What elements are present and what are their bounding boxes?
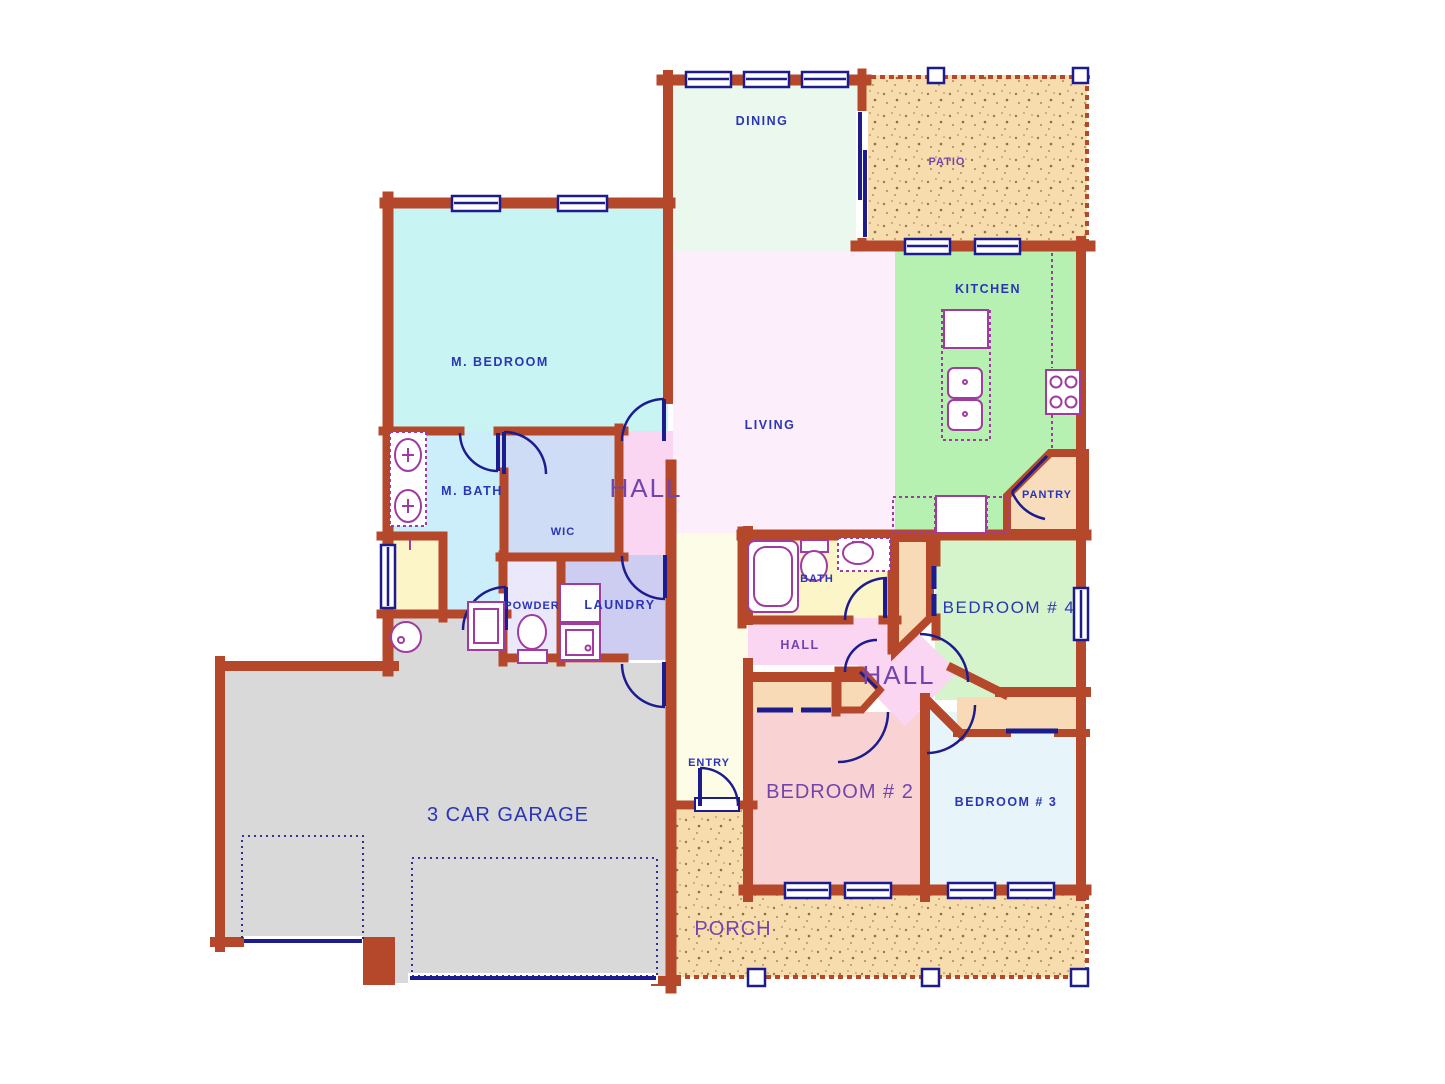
burner [1066,397,1077,408]
window [802,72,848,87]
drain [963,380,967,384]
utility-sink-basin [474,609,498,643]
window [905,239,950,254]
toilet [518,615,546,649]
cooktop [1046,370,1080,414]
window [744,72,789,87]
label-powder: POWDER [504,600,560,612]
water-heater [391,622,421,652]
window [558,196,607,211]
label-patio: PATIO [929,156,966,168]
sink [843,542,873,564]
label-garage: 3 CAR GARAGE [427,804,589,826]
floor-plan-page: DINING KITCHEN LIVING M. BEDROOM M. BATH… [0,0,1445,1084]
water-heater-valve [398,637,404,643]
label-laundry: LAUNDRY [584,598,655,612]
label-kitchen: KITCHEN [955,282,1021,296]
kitchen-cabinet [944,310,988,348]
wall [363,937,395,985]
label-living: LIVING [745,418,796,432]
drain [963,412,967,416]
room-garage [225,618,668,983]
range [936,496,986,533]
label-entry: ENTRY [688,757,730,769]
bedroom3-closet [957,697,1085,733]
patio-post [1073,68,1088,83]
room-living [673,252,895,535]
label-wic: WIC [551,526,575,538]
window [686,72,731,87]
window [948,883,995,898]
label-hall-mid: HALL [780,638,819,652]
burner [1051,397,1062,408]
porch-post [748,969,765,986]
room-m-bedroom [385,198,668,431]
window [1008,883,1054,898]
bathtub-inner [754,547,792,606]
sliding-door [856,111,868,238]
window [452,196,500,211]
toilet-base [518,650,547,663]
room-dining [668,75,862,252]
garage-door-opening [244,936,363,947]
window [845,883,891,898]
label-pantry: PANTRY [1022,489,1072,501]
porch-post [922,969,939,986]
window [975,239,1020,254]
garage-door-opening [408,973,658,984]
patio-post [928,68,944,83]
label-porch: PORCH [694,918,771,940]
label-bedroom2: BEDROOM # 2 [766,781,914,803]
label-bedroom4: BEDROOM # 4 [943,598,1076,617]
label-m-bath: M. BATH [441,484,503,498]
label-bedroom3: BEDROOM # 3 [955,795,1058,809]
window [1074,588,1088,640]
porch-post [1071,969,1088,986]
dryer-knob [586,646,591,651]
label-dining: DINING [736,114,789,128]
window [785,883,830,898]
label-hall-diamond: HALL [862,660,935,690]
window [381,545,395,608]
label-bath: BATH [800,573,834,585]
patio-texture [862,75,1087,246]
floor-plan-drawing: DINING KITCHEN LIVING M. BEDROOM M. BATH… [0,0,1445,1084]
burner [1051,377,1062,388]
label-m-bedroom: M. BEDROOM [451,355,549,369]
burner [1066,377,1077,388]
label-hall-upper: HALL [609,473,682,503]
